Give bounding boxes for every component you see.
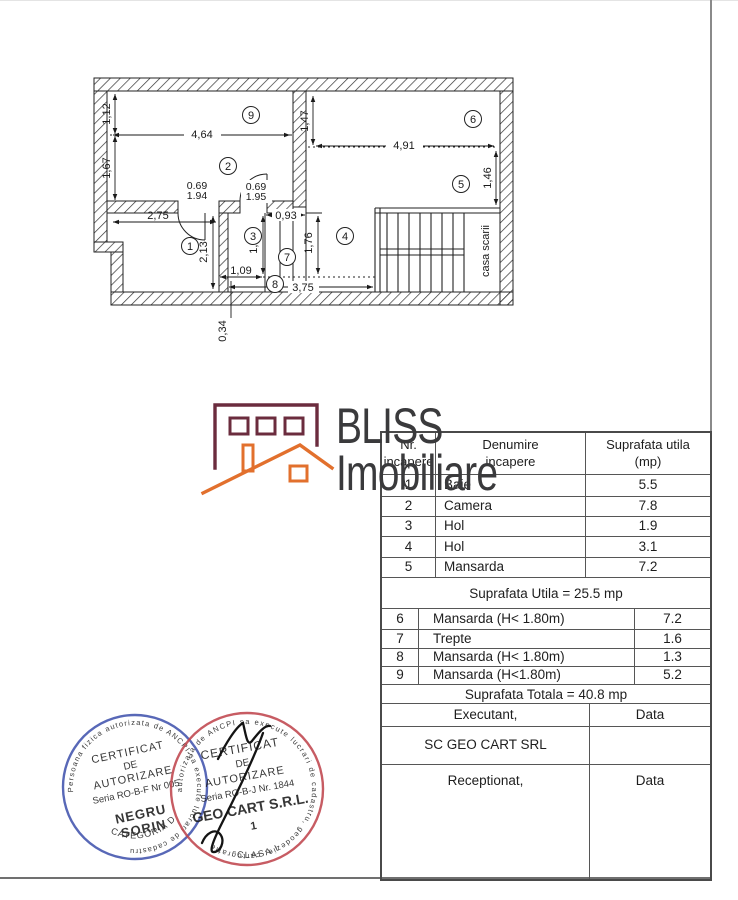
scanned-document-page: 1,12 1,67 4,64 2,75 2,13 0.69 1.94 0.69 … — [0, 0, 738, 900]
stamp-red-line6: 1 — [250, 820, 258, 833]
dim-0-34: 0,34 — [217, 320, 229, 341]
cell-val: 7.2 — [586, 558, 710, 577]
cell-nr: 4 — [382, 537, 436, 557]
receptionat-data-label: Data — [590, 765, 710, 879]
stamp-blue: Persoana fizica autorizata de ANCPI sa e… — [50, 702, 220, 873]
company-row: SC GEO CART SRL — [382, 727, 710, 765]
cell-nr: 9 — [382, 667, 419, 684]
cell-nr: 6 — [382, 609, 419, 629]
subtotal-text: Suprafata Utila = 25.5 mp — [382, 578, 710, 608]
room-circle-6: 6 — [470, 114, 476, 126]
cell-name: Trepte — [419, 630, 635, 648]
dim-1-67: 1,67 — [101, 157, 113, 178]
cell-name: Mansarda (H< 1.80m) — [419, 609, 635, 629]
company-data-cell — [590, 727, 710, 764]
cell-name: Hol — [436, 517, 586, 536]
table-row: 9 Mansarda (H<1.80m) 5.2 — [382, 667, 710, 685]
dim-1-46: 1,46 — [482, 167, 494, 188]
floor-plan: 1,12 1,67 4,64 2,75 2,13 0.69 1.94 0.69 … — [0, 0, 738, 360]
dim-1-76-right: 1,76 — [303, 232, 315, 253]
stamps-area: Persoana fizica autorizata de ANCPI sa e… — [50, 695, 340, 890]
cell-val: 3.1 — [586, 537, 710, 557]
room-circle-1: 1 — [187, 241, 193, 253]
room-circle-5: 5 — [458, 179, 464, 191]
table-row: 3 Hol 1.9 — [382, 517, 710, 537]
cell-val: 7.8 — [586, 497, 710, 516]
executant-data-label: Data — [590, 704, 710, 726]
dim-2-13: 2,13 — [198, 241, 210, 262]
room-circle-3: 3 — [250, 231, 256, 243]
receptionat-row: Receptionat, Data — [382, 765, 710, 879]
cell-nr: 5 — [382, 558, 436, 577]
cell-nr: 7 — [382, 630, 419, 648]
subtotal-row: Suprafata Utila = 25.5 mp — [382, 578, 710, 609]
dim-1-12: 1,12 — [101, 103, 113, 124]
table-row: 7 Trepte 1.6 — [382, 630, 710, 649]
room-circle-7: 7 — [284, 252, 290, 264]
dim-1-09: 1,09 — [230, 265, 251, 277]
total-text: Suprafata Totala = 40.8 mp — [382, 685, 710, 703]
cell-val: 5.5 — [586, 475, 710, 496]
stamp-red: autorizata de ANCPI sa execute lucrari d… — [159, 701, 335, 877]
cell-val: 7.2 — [635, 609, 710, 629]
cell-nr: 3 — [382, 517, 436, 536]
dim-4-91: 4,91 — [393, 140, 414, 152]
room-circle-8: 8 — [272, 279, 278, 291]
cell-name: Mansarda (H<1.80m) — [419, 667, 635, 684]
company-name: SC GEO CART SRL — [382, 727, 590, 764]
room-circle-2: 2 — [225, 161, 231, 173]
table-row: 6 Mansarda (H< 1.80m) 7.2 — [382, 609, 710, 630]
dim-1-47: 1,47 — [299, 110, 311, 131]
dim-1-95: 1.95 — [246, 191, 267, 203]
staircase-label: casa scarii — [480, 225, 492, 277]
table-row: 5 Mansarda 7.2 — [382, 558, 710, 578]
total-row: Suprafata Totala = 40.8 mp — [382, 685, 710, 704]
logo-wordmark-line2: Imobiliare — [336, 448, 497, 498]
cell-val: 1.6 — [635, 630, 710, 648]
dim-0-93: 0,93 — [275, 210, 296, 222]
receptionat-label: Receptionat, — [382, 765, 590, 879]
dim-2-75: 2,75 — [147, 210, 168, 222]
logo-house-icon — [198, 398, 348, 502]
dim-4-64: 4,64 — [191, 129, 212, 141]
dim-1-94: 1.94 — [187, 190, 208, 202]
cell-name: Mansarda — [436, 558, 586, 577]
executant-label: Executant, — [382, 704, 590, 726]
cell-name: Hol — [436, 537, 586, 557]
dim-3-75: 3,75 — [292, 282, 313, 294]
table-row: 8 Mansarda (H< 1.80m) 1.3 — [382, 649, 710, 667]
logo-wordmark-line1: BLISS — [336, 401, 443, 451]
cell-val: 5.2 — [635, 667, 710, 684]
header-suprafata: Suprafata utila (mp) — [586, 433, 710, 474]
room-circle-4: 4 — [342, 231, 348, 243]
cell-name: Mansarda (H< 1.80m) — [419, 649, 635, 666]
cell-val: 1.3 — [635, 649, 710, 666]
cell-nr: 8 — [382, 649, 419, 666]
cell-val: 1.9 — [586, 517, 710, 536]
table-row: 4 Hol 3.1 — [382, 537, 710, 558]
executant-row: Executant, Data — [382, 704, 710, 727]
room-circle-9: 9 — [248, 110, 254, 122]
